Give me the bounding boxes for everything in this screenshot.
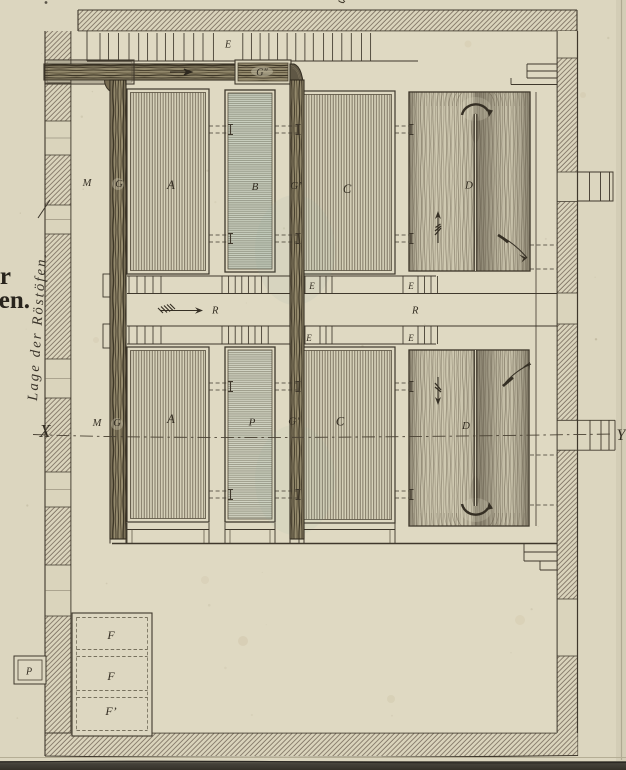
svg-text:en.: en.	[0, 287, 30, 314]
svg-text:G: G	[113, 418, 121, 429]
svg-text:A: A	[166, 178, 175, 192]
svg-text:G’: G’	[290, 180, 302, 192]
svg-text:C: C	[343, 182, 352, 196]
svg-text:F: F	[106, 669, 115, 683]
svg-text:R: R	[211, 306, 219, 317]
svg-text:F: F	[106, 628, 115, 642]
svg-text:P: P	[25, 667, 32, 678]
svg-text:r: r	[0, 263, 11, 290]
svg-text:E: E	[308, 281, 315, 291]
svg-text:E: E	[407, 333, 414, 343]
svg-text:E: E	[305, 333, 312, 343]
svg-text:G: G	[115, 179, 123, 190]
svg-text:E: E	[407, 281, 414, 291]
svg-text:G’: G’	[288, 416, 300, 428]
svg-text:M: M	[92, 418, 103, 429]
svg-text:M: M	[82, 178, 93, 189]
svg-text:E: E	[224, 40, 231, 51]
svg-text:D: D	[461, 420, 470, 432]
svg-text:D: D	[464, 180, 473, 192]
svg-text:G″: G″	[256, 68, 268, 79]
svg-text:B: B	[252, 181, 259, 193]
svg-text:R: R	[411, 306, 419, 317]
svg-text:Y: Y	[617, 427, 626, 444]
svg-text:F’: F’	[104, 704, 116, 718]
svg-text:A: A	[166, 412, 175, 426]
svg-text:C: C	[336, 415, 345, 429]
svg-text:P: P	[248, 417, 256, 429]
svg-text:X: X	[39, 421, 52, 441]
